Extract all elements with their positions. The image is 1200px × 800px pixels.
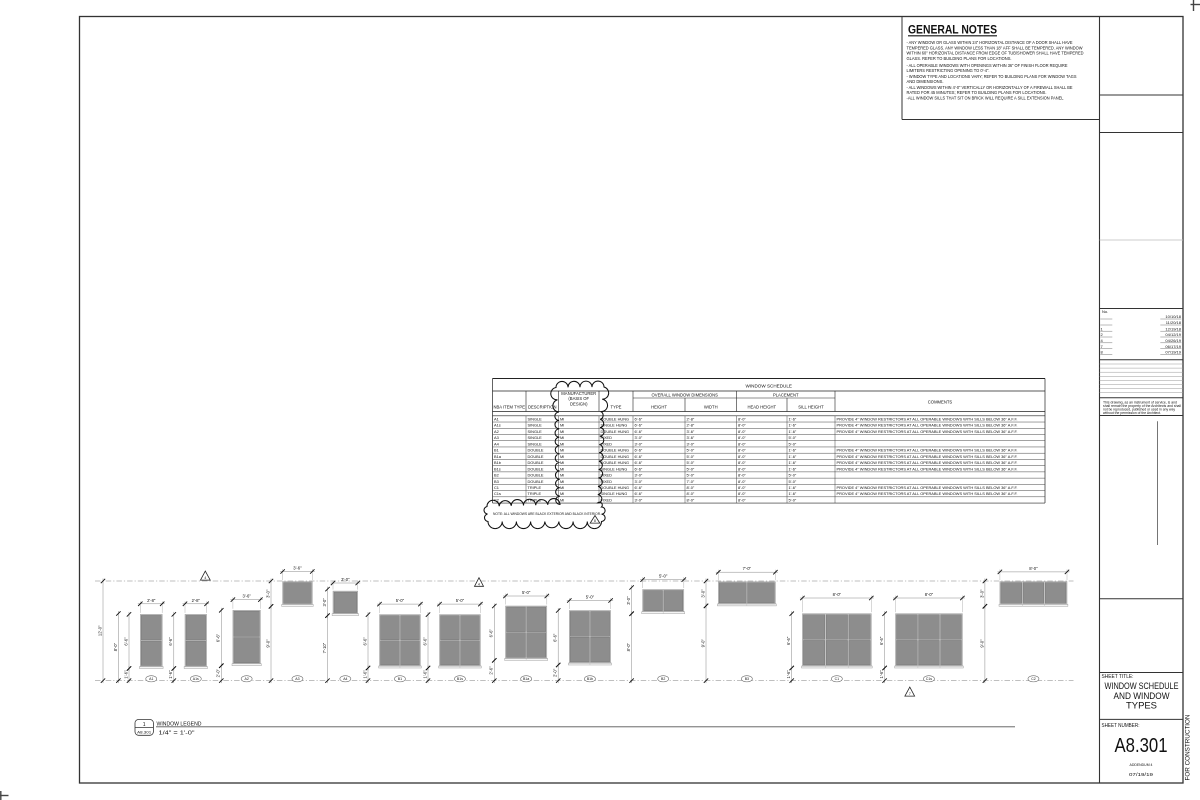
- svg-text:B2: B2: [494, 473, 499, 478]
- svg-text:6'-6": 6'-6": [786, 636, 791, 645]
- svg-text:DOUBLE HUNG: DOUBLE HUNG: [601, 454, 630, 459]
- svg-text:B1: B1: [398, 677, 402, 681]
- svg-text:8'-0": 8'-0": [626, 642, 631, 651]
- svg-text:NBA ITEM TYPE: NBA ITEM TYPE: [493, 405, 525, 410]
- svg-text:6'-6": 6'-6": [635, 491, 643, 496]
- svg-text:5'-0": 5'-0": [687, 454, 695, 459]
- svg-text:3'-0": 3'-0": [341, 577, 350, 582]
- svg-text:1'-6": 1'-6": [789, 454, 797, 459]
- svg-text:DOUBLE: DOUBLE: [528, 473, 544, 478]
- svg-text:PROVIDE 4" WINDOW RESTRICTORS: PROVIDE 4" WINDOW RESTRICTORS AT ALL OPE…: [837, 460, 1018, 465]
- svg-text:4: 4: [204, 576, 206, 580]
- svg-text:WINDOW SCHEDULE: WINDOW SCHEDULE: [746, 384, 792, 389]
- svg-text:COMMENTS: COMMENTS: [928, 400, 953, 405]
- svg-text:B1s: B1s: [494, 466, 501, 471]
- svg-text:LIMITERS RESTRICTING OPENING T: LIMITERS RESTRICTING OPENING TO 0'-4".: [907, 68, 990, 73]
- svg-text:PROVIDE 4" WINDOW RESTRICTORS: PROVIDE 4" WINDOW RESTRICTORS AT ALL OPE…: [837, 416, 1018, 421]
- svg-text:TYPES: TYPES: [1126, 700, 1157, 711]
- svg-text:B1b: B1b: [587, 677, 593, 681]
- svg-text:6'-6": 6'-6": [362, 637, 367, 646]
- svg-text:1'-6": 1'-6": [789, 416, 797, 421]
- svg-text:5'-0": 5'-0": [789, 441, 797, 446]
- svg-text:(BASIS OF: (BASIS OF: [568, 396, 589, 401]
- svg-text:SINGLE: SINGLE: [528, 435, 543, 440]
- svg-text:9'-0": 9'-0": [265, 639, 270, 648]
- svg-text:1'-6": 1'-6": [789, 466, 797, 471]
- svg-text:3'-0": 3'-0": [635, 497, 643, 502]
- svg-text:B3: B3: [745, 677, 749, 681]
- svg-text:3'-6": 3'-6": [242, 594, 251, 599]
- svg-text:1/4" = 1'-0": 1/4" = 1'-0": [159, 731, 195, 737]
- svg-text:3'-6": 3'-6": [687, 435, 695, 440]
- svg-text:3'-0": 3'-0": [626, 596, 631, 605]
- svg-text:MI: MI: [560, 491, 564, 496]
- svg-text:3'-6": 3'-6": [687, 429, 695, 434]
- svg-text:5'-0": 5'-0": [789, 473, 797, 478]
- svg-text:A2: A2: [494, 429, 499, 434]
- svg-text:DOUBLE HUNG: DOUBLE HUNG: [601, 429, 630, 434]
- svg-text:SINGLE HUNG: SINGLE HUNG: [601, 491, 628, 496]
- svg-text:8'-0": 8'-0": [738, 479, 746, 484]
- svg-text:MI: MI: [560, 479, 564, 484]
- svg-text:5'-0": 5'-0": [586, 595, 595, 600]
- svg-text:3'-6": 3'-6": [293, 566, 302, 571]
- svg-text:3'-0": 3'-0": [635, 479, 643, 484]
- svg-text:DOUBLE HUNG: DOUBLE HUNG: [601, 460, 630, 465]
- svg-text:B1: B1: [494, 448, 499, 453]
- svg-text:1'-6": 1'-6": [789, 448, 797, 453]
- svg-text:A3: A3: [494, 435, 499, 440]
- svg-text:1'-6": 1'-6": [422, 670, 427, 679]
- svg-text:8'-0": 8'-0": [687, 497, 695, 502]
- svg-text:HEIGHT: HEIGHT: [651, 405, 667, 410]
- svg-text:3'-0": 3'-0": [979, 589, 984, 598]
- svg-text:MI: MI: [560, 497, 564, 502]
- svg-text:A1s: A1s: [193, 677, 199, 681]
- svg-text:PROVIDE 4" WINDOW RESTRICTORS: PROVIDE 4" WINDOW RESTRICTORS AT ALL OPE…: [837, 454, 1018, 459]
- svg-text:DOUBLE: DOUBLE: [528, 448, 544, 453]
- svg-text:2'-0": 2'-0": [216, 668, 221, 677]
- svg-text:TRIPLE: TRIPLE: [528, 491, 542, 496]
- svg-text:1'-6": 1'-6": [123, 670, 128, 679]
- svg-text:MANUFACTURER: MANUFACTURER: [561, 391, 596, 396]
- svg-text:without the permission of the: without the permission of the Architect.: [1103, 411, 1161, 415]
- svg-text:07/19/19: 07/19/19: [1129, 772, 1153, 778]
- svg-text:SHEET NUMBER:: SHEET NUMBER:: [1102, 723, 1140, 729]
- svg-text:A1: A1: [494, 416, 499, 421]
- svg-text:GENERAL NOTES: GENERAL NOTES: [908, 23, 997, 37]
- svg-text:1'-6": 1'-6": [789, 429, 797, 434]
- svg-text:5'-0": 5'-0": [687, 473, 695, 478]
- svg-text:NOTE: ALL WINDOWS ARE BLACK EX: NOTE: ALL WINDOWS ARE BLACK EXTERIOR AND…: [493, 512, 601, 516]
- svg-text:3'-0": 3'-0": [322, 598, 327, 607]
- svg-text:PROVIDE 4" WINDOW RESTRICTORS: PROVIDE 4" WINDOW RESTRICTORS AT ALL OPE…: [837, 429, 1018, 434]
- svg-text:GLASS. REFER TO BUILDING PLANS: GLASS. REFER TO BUILDING PLANS FOR LOCAT…: [907, 56, 1012, 61]
- svg-text:B2: B2: [661, 677, 665, 681]
- svg-text:ADDENDUM 4: ADDENDUM 4: [1130, 762, 1154, 767]
- svg-text:MI: MI: [560, 416, 564, 421]
- svg-text:8'-0": 8'-0": [738, 423, 746, 428]
- svg-text:DESCRIPTION: DESCRIPTION: [528, 405, 557, 410]
- svg-text:MI: MI: [560, 454, 564, 459]
- svg-text:5'-0": 5'-0": [687, 448, 695, 453]
- svg-text:8'-0": 8'-0": [738, 485, 746, 490]
- svg-text:8'-0": 8'-0": [738, 497, 746, 502]
- svg-text:SINGLE HUNG: SINGLE HUNG: [601, 466, 628, 471]
- svg-text:8'-0": 8'-0": [738, 473, 746, 478]
- svg-text:DOUBLE HUNG: DOUBLE HUNG: [601, 448, 630, 453]
- svg-text:2'-8": 2'-8": [687, 423, 695, 428]
- svg-text:9'-0": 9'-0": [979, 639, 984, 648]
- svg-text:B1a: B1a: [494, 454, 502, 459]
- svg-text:1'-6": 1'-6": [362, 670, 367, 679]
- svg-text:6'-6": 6'-6": [553, 633, 558, 642]
- svg-text:A3: A3: [295, 677, 299, 681]
- svg-text:7: 7: [909, 692, 911, 696]
- svg-text:12'-0": 12'-0": [97, 625, 102, 636]
- svg-text:PROVIDE 4" WINDOW RESTRICTORS: PROVIDE 4" WINDOW RESTRICTORS AT ALL OPE…: [837, 466, 1018, 471]
- svg-text:SILL HEIGHT: SILL HEIGHT: [798, 405, 824, 410]
- svg-text:6'-6": 6'-6": [879, 636, 884, 645]
- svg-text:C1: C1: [835, 677, 840, 681]
- svg-text:2'-8": 2'-8": [192, 598, 201, 603]
- svg-text:6'-6": 6'-6": [422, 637, 427, 646]
- svg-text:8'-0": 8'-0": [113, 642, 118, 651]
- svg-text:A4: A4: [343, 677, 347, 681]
- svg-text:3'-0": 3'-0": [635, 441, 643, 446]
- svg-text:6'-6": 6'-6": [635, 454, 643, 459]
- svg-text:7'-10": 7'-10": [322, 642, 327, 653]
- svg-text:HEAD HEIGHT: HEAD HEIGHT: [747, 405, 776, 410]
- svg-text:7'-0": 7'-0": [687, 479, 695, 484]
- svg-text:DOUBLE: DOUBLE: [528, 460, 544, 465]
- svg-text:8'-0": 8'-0": [1029, 566, 1038, 571]
- svg-text:8'-0": 8'-0": [738, 466, 746, 471]
- svg-text:B1a: B1a: [523, 677, 529, 681]
- svg-text:C2: C2: [1031, 677, 1036, 681]
- svg-text:DOUBLE HUNG: DOUBLE HUNG: [601, 416, 630, 421]
- svg-text:5'-0": 5'-0": [659, 574, 668, 579]
- svg-text:5'-0": 5'-0": [687, 460, 695, 465]
- svg-text:8: 8: [594, 519, 596, 523]
- svg-text:1'-6": 1'-6": [789, 491, 797, 496]
- svg-text:5'-0": 5'-0": [456, 598, 465, 603]
- svg-text:A8.301: A8.301: [137, 730, 151, 734]
- svg-text:MI: MI: [560, 441, 564, 446]
- svg-text:PLACEMENT: PLACEMENT: [773, 392, 799, 397]
- svg-text:5'-0": 5'-0": [789, 479, 797, 484]
- svg-text:8'-0": 8'-0": [738, 491, 746, 496]
- svg-text:PROVIDE 4" WINDOW RESTRICTORS: PROVIDE 4" WINDOW RESTRICTORS AT ALL OPE…: [837, 485, 1018, 490]
- svg-text:B1b: B1b: [494, 460, 501, 465]
- svg-text:1'-6": 1'-6": [786, 670, 791, 679]
- svg-text:PROVIDE 4" WINDOW RESTRICTORS: PROVIDE 4" WINDOW RESTRICTORS AT ALL OPE…: [837, 423, 1018, 428]
- svg-text:TYPE: TYPE: [611, 405, 622, 410]
- svg-text:A1s: A1s: [494, 423, 501, 428]
- svg-text:1'-6": 1'-6": [789, 460, 797, 465]
- svg-text:8'-0": 8'-0": [738, 416, 746, 421]
- svg-text:6'-6": 6'-6": [635, 423, 643, 428]
- svg-text:5'-0": 5'-0": [789, 435, 797, 440]
- svg-text:8'-0": 8'-0": [687, 485, 695, 490]
- svg-text:9'-0": 9'-0": [700, 639, 705, 648]
- svg-text:6'-6": 6'-6": [635, 416, 643, 421]
- svg-text:8'-0": 8'-0": [738, 454, 746, 459]
- svg-text:10/10/18: 10/10/18: [1165, 314, 1181, 319]
- svg-text:No.: No.: [1102, 309, 1108, 314]
- svg-text:5'-0": 5'-0": [687, 466, 695, 471]
- svg-text:MI: MI: [560, 448, 564, 453]
- svg-text:B1s: B1s: [457, 677, 463, 681]
- svg-text:8'-0": 8'-0": [833, 592, 842, 597]
- svg-text:1'-6": 1'-6": [879, 670, 884, 679]
- svg-text:8'-0": 8'-0": [738, 460, 746, 465]
- svg-text:6'-6": 6'-6": [635, 448, 643, 453]
- svg-text:3'-0": 3'-0": [687, 441, 695, 446]
- svg-text:1'-6": 1'-6": [168, 670, 173, 679]
- svg-text:6'-6": 6'-6": [635, 485, 643, 490]
- svg-text:6'-6": 6'-6": [216, 633, 221, 642]
- svg-text:DESIGN): DESIGN): [570, 402, 588, 407]
- svg-text:1: 1: [143, 722, 146, 728]
- svg-text:OVERALL WINDOW DIMENSIONS: OVERALL WINDOW DIMENSIONS: [652, 392, 719, 397]
- svg-text:8'-0": 8'-0": [738, 429, 746, 434]
- svg-text:3'-0": 3'-0": [700, 589, 705, 598]
- svg-text:C1s: C1s: [494, 491, 501, 496]
- svg-text:MI: MI: [560, 429, 564, 434]
- svg-text:WIDTH: WIDTH: [704, 405, 718, 410]
- svg-text:2'-8": 2'-8": [687, 416, 695, 421]
- svg-text:MI: MI: [560, 460, 564, 465]
- svg-text:MI: MI: [560, 485, 564, 490]
- svg-text:DOUBLE: DOUBLE: [528, 466, 544, 471]
- svg-text:-ALL WINDOW SILLS THAT SIT ON: -ALL WINDOW SILLS THAT SIT ON BRICK WILL…: [907, 95, 1064, 100]
- svg-text:A4: A4: [494, 441, 500, 446]
- svg-text:DOUBLE HUNG: DOUBLE HUNG: [601, 485, 630, 490]
- svg-text:4: 4: [478, 582, 480, 586]
- svg-text:C1: C1: [494, 485, 499, 490]
- svg-text:DOUBLE: DOUBLE: [528, 454, 544, 459]
- svg-text:SINGLE: SINGLE: [528, 429, 543, 434]
- svg-text:PROVIDE 4" WINDOW RESTRICTORS: PROVIDE 4" WINDOW RESTRICTORS AT ALL OPE…: [837, 491, 1018, 496]
- svg-text:5'-0": 5'-0": [522, 590, 531, 595]
- svg-text:6'-6": 6'-6": [635, 466, 643, 471]
- svg-text:04/26/19: 04/26/19: [1165, 338, 1181, 343]
- svg-text:8'-0": 8'-0": [925, 592, 934, 597]
- svg-text:MI: MI: [560, 466, 564, 471]
- svg-text:A2: A2: [245, 677, 249, 681]
- svg-text:1'-6": 1'-6": [789, 423, 797, 428]
- svg-text:5'-0": 5'-0": [789, 497, 797, 502]
- svg-text:5'-0": 5'-0": [396, 598, 405, 603]
- svg-text:SINGLE: SINGLE: [528, 441, 543, 446]
- svg-text:6'-6": 6'-6": [489, 629, 494, 638]
- svg-text:AND DIMENSIONS.: AND DIMENSIONS.: [907, 79, 944, 84]
- svg-text:2'-6": 2'-6": [489, 666, 494, 675]
- svg-text:MI: MI: [560, 435, 564, 440]
- svg-text:8'-0": 8'-0": [738, 441, 746, 446]
- svg-text:1'-6": 1'-6": [789, 485, 797, 490]
- svg-text:8'-0": 8'-0": [738, 435, 746, 440]
- svg-text:3'-0": 3'-0": [635, 435, 643, 440]
- svg-text:SINGLE: SINGLE: [528, 416, 543, 421]
- svg-text:A8.301: A8.301: [1115, 735, 1168, 757]
- svg-text:6'-6": 6'-6": [635, 460, 643, 465]
- svg-text:2'-8": 2'-8": [147, 598, 156, 603]
- svg-text:3'-0": 3'-0": [635, 473, 643, 478]
- svg-text:7'-0": 7'-0": [743, 566, 752, 571]
- svg-text:FOR CONSTRUCTION: FOR CONSTRUCTION: [1185, 714, 1192, 780]
- svg-text:11/20/18: 11/20/18: [1166, 320, 1182, 325]
- svg-text:MI: MI: [560, 423, 564, 428]
- svg-text:6'-6": 6'-6": [168, 637, 173, 646]
- svg-text:PROVIDE 4" WINDOW RESTRICTORS: PROVIDE 4" WINDOW RESTRICTORS AT ALL OPE…: [837, 448, 1018, 453]
- svg-text:MI: MI: [560, 473, 564, 478]
- svg-text:07/19/19: 07/19/19: [1165, 350, 1181, 355]
- svg-text:6'-6": 6'-6": [123, 637, 128, 646]
- svg-text:06/17/19: 06/17/19: [1165, 344, 1181, 349]
- svg-text:B3: B3: [494, 479, 499, 484]
- svg-text:8'-0": 8'-0": [738, 448, 746, 453]
- svg-text:8'-0": 8'-0": [687, 491, 695, 496]
- svg-text:12/19/18: 12/19/18: [1165, 326, 1181, 331]
- svg-text:C1s: C1s: [926, 677, 932, 681]
- svg-text:3'-0": 3'-0": [265, 589, 270, 598]
- svg-text:04/12/19: 04/12/19: [1165, 332, 1181, 337]
- svg-text:SINGLE: SINGLE: [528, 423, 543, 428]
- svg-text:SINGLE HUNG: SINGLE HUNG: [601, 423, 628, 428]
- svg-text:A1: A1: [149, 677, 153, 681]
- svg-text:6'-6": 6'-6": [635, 429, 643, 434]
- svg-text:2'-0": 2'-0": [553, 668, 558, 677]
- svg-text:TRIPLE: TRIPLE: [528, 485, 542, 490]
- svg-text:DOUBLE: DOUBLE: [528, 479, 544, 484]
